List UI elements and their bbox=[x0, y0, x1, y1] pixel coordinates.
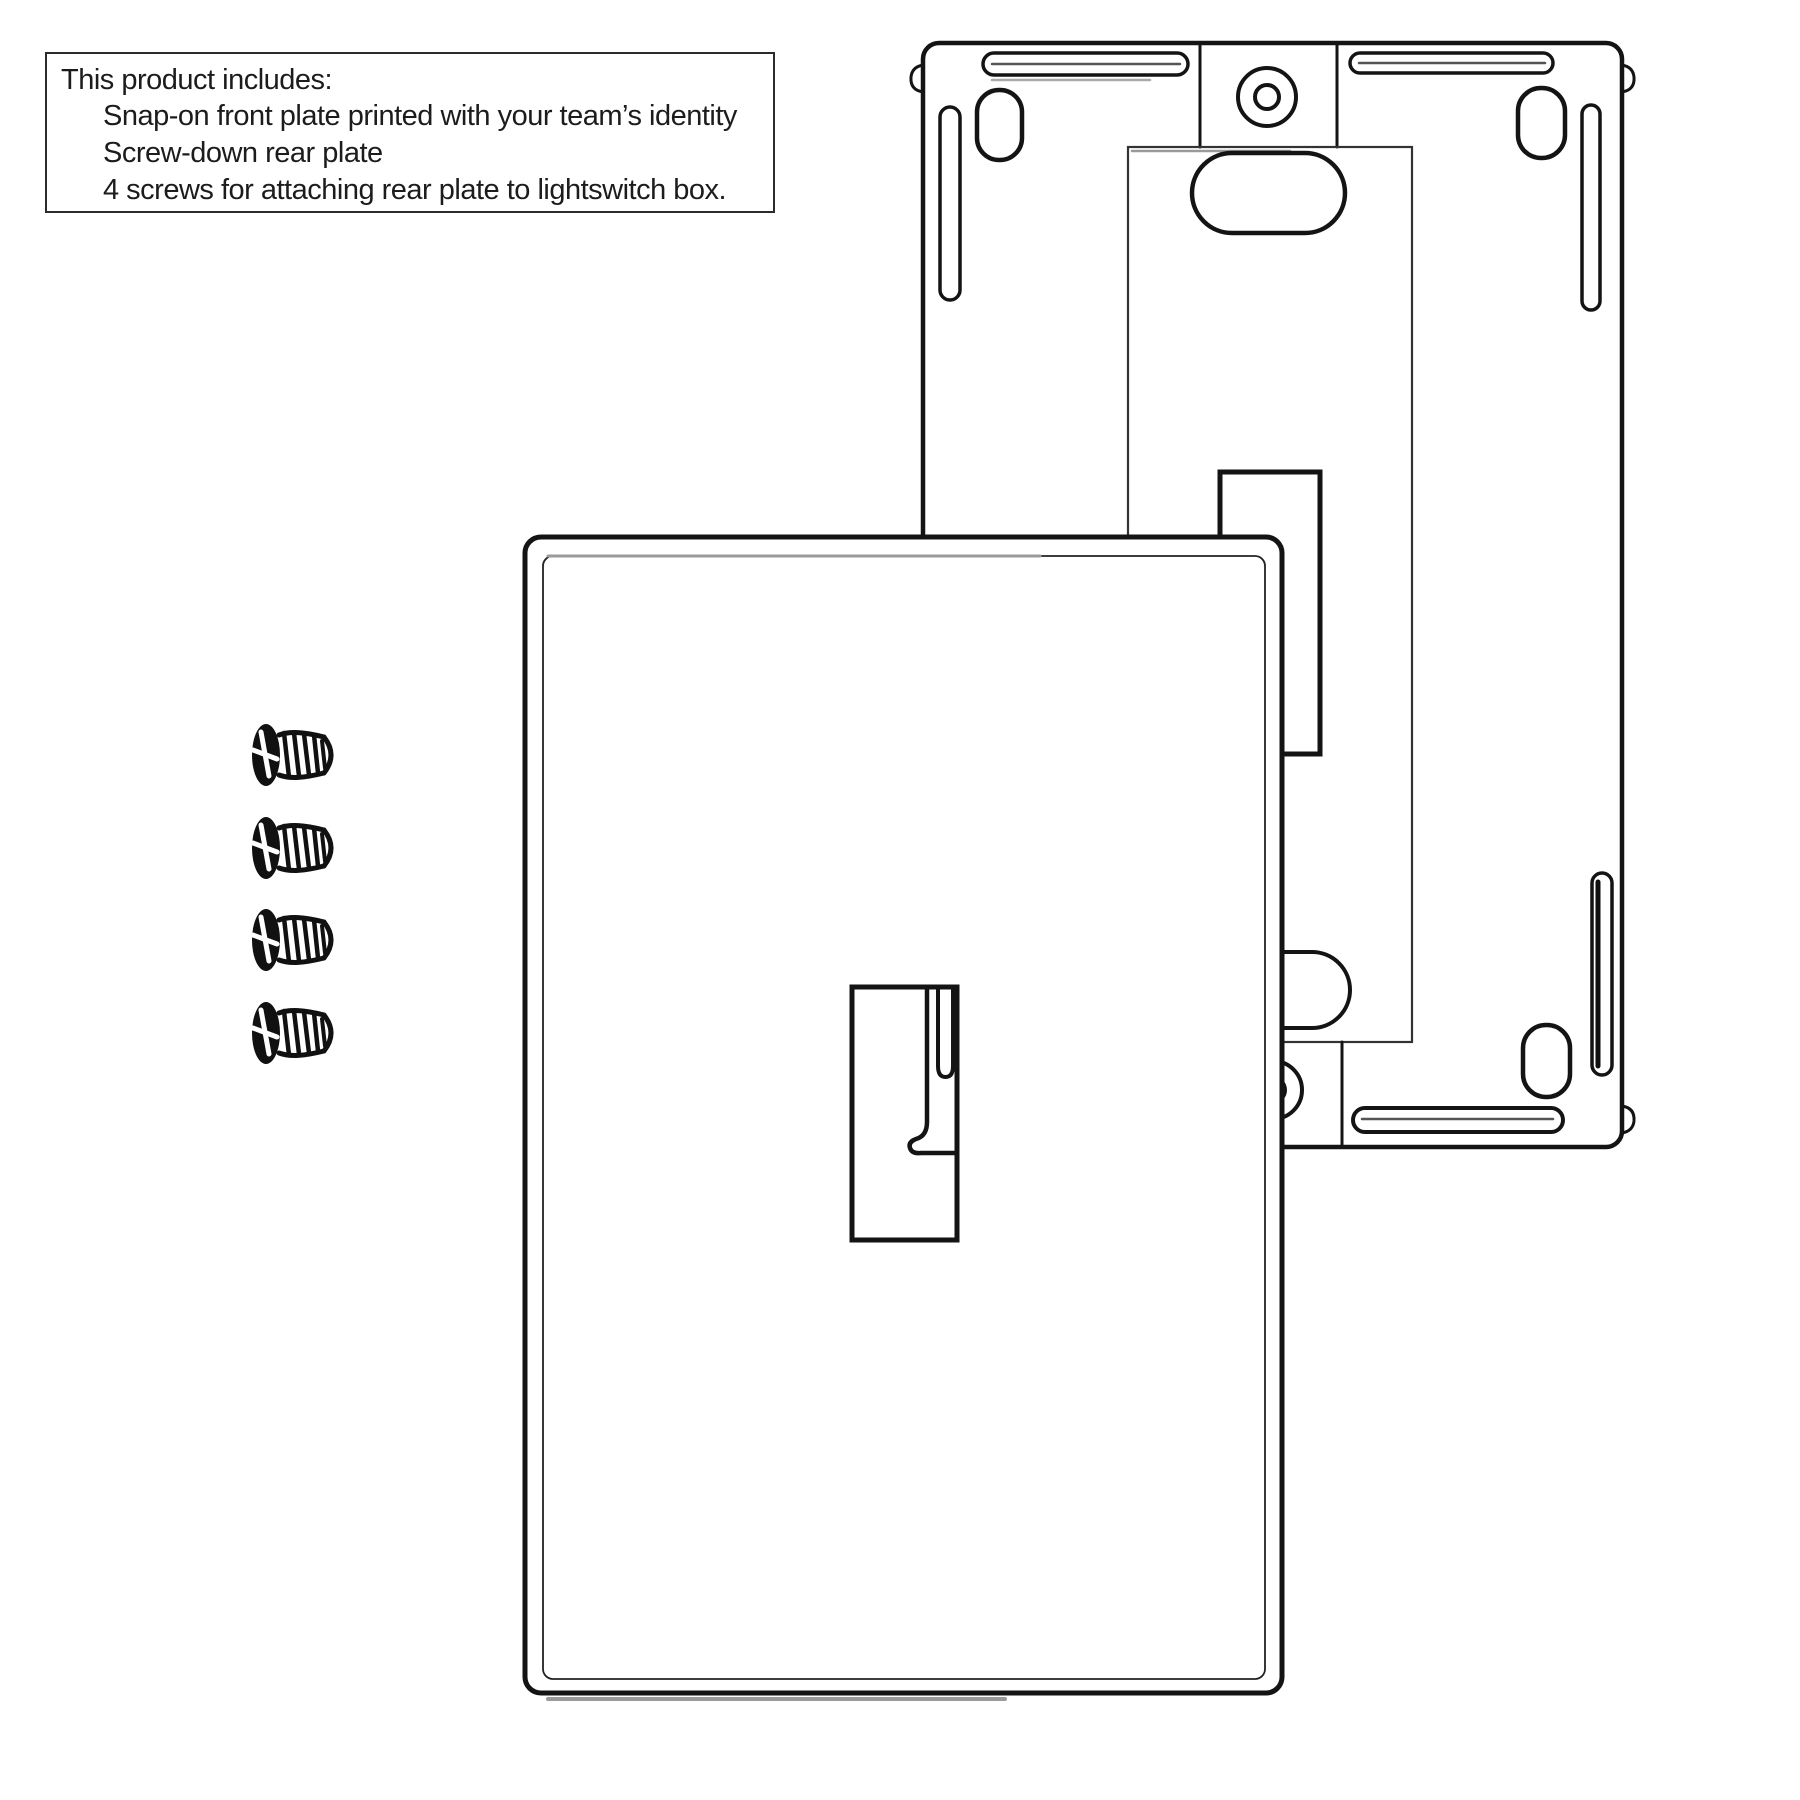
info-box-item: Screw-down rear plate bbox=[103, 135, 773, 172]
screw-icon bbox=[252, 817, 331, 879]
screw-icon bbox=[252, 1002, 331, 1064]
info-box-title: This product includes: bbox=[61, 62, 773, 98]
product-diagram-page: This product includes: Snap-on front pla… bbox=[0, 0, 1800, 1800]
screw-icon bbox=[252, 909, 331, 971]
toggle-opening bbox=[852, 987, 957, 1240]
info-box-item: Snap-on front plate printed with your te… bbox=[103, 98, 773, 135]
info-box: This product includes: Snap-on front pla… bbox=[45, 52, 775, 213]
front-plate-diagram bbox=[525, 537, 1282, 1699]
diagram-svg bbox=[0, 0, 1800, 1800]
screw-icon bbox=[252, 724, 331, 786]
info-box-item: 4 screws for attaching rear plate to lig… bbox=[103, 172, 773, 209]
screws-group bbox=[252, 724, 331, 1064]
